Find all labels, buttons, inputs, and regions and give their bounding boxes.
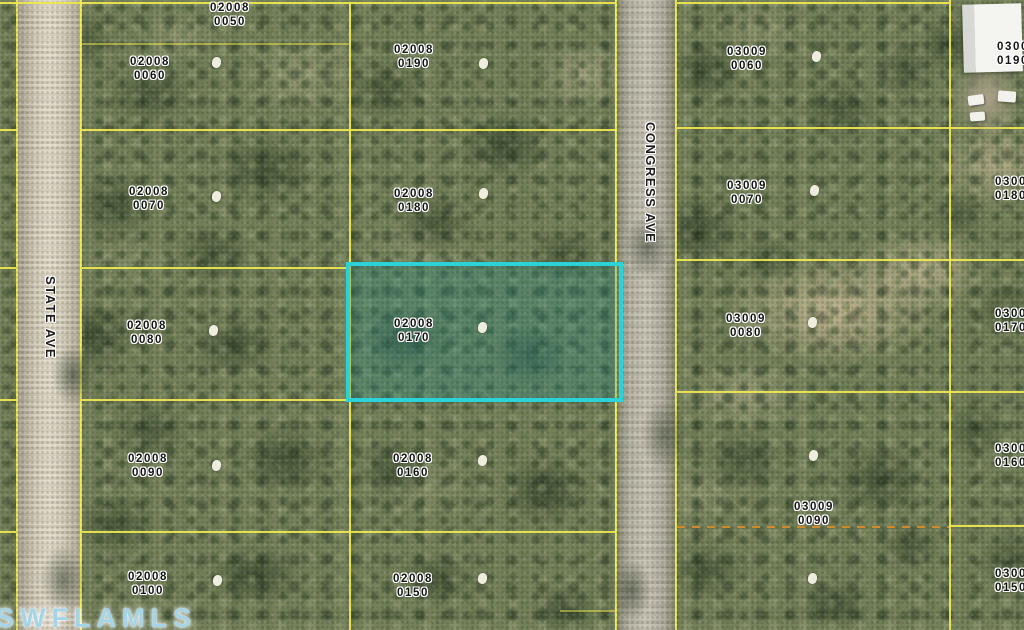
parcel-boundary-line (82, 267, 349, 269)
parcel-label: 02008 0080 (127, 320, 167, 347)
parcel-boundary-line (0, 267, 16, 269)
parcel-label: 0300 0150 (995, 568, 1024, 595)
parcel-boundary-line (560, 610, 615, 612)
parcel-label: 0300 0170 (995, 308, 1024, 335)
vehicle (998, 90, 1017, 102)
aerial-parcel-map: STATE AVE CONGRESS AVE 02008 005002008 0… (0, 0, 1024, 630)
parcel-boundary-line (82, 43, 349, 45)
parcel-label: 02008 0160 (393, 453, 433, 480)
parcel-label: 02008 0100 (128, 571, 168, 598)
parcel-label: 02008 0050 (210, 2, 250, 29)
parcel-label: 0300 0190 (997, 41, 1024, 68)
parcel-boundary-line (82, 531, 615, 533)
parcel-label: 03009 0060 (727, 46, 767, 73)
parcel-boundary-line (82, 129, 615, 131)
parcel-boundary-line (82, 399, 349, 401)
parcel-boundary-line (0, 2, 615, 4)
road-label-congress-ave: CONGRESS AVE (643, 122, 658, 243)
parcel-label: 02008 0190 (394, 44, 434, 71)
parcel-label: 02008 0180 (394, 188, 434, 215)
parcel-label: 02008 0060 (130, 56, 170, 83)
parcel-boundary-line (677, 2, 949, 4)
vehicle (970, 111, 986, 121)
parcel-label: 02008 0150 (393, 573, 433, 600)
parcel-label: 03009 0080 (726, 313, 766, 340)
parcel-label: 02008 0170 (394, 318, 434, 345)
parcel-boundary-line (0, 399, 16, 401)
parcel-boundary-line (677, 391, 1024, 393)
mls-watermark: SWFLAMLS (0, 603, 197, 630)
road-label-state-ave: STATE AVE (43, 276, 58, 359)
parcel-label: 0300 0180 (995, 176, 1024, 203)
parcel-boundary-line (949, 525, 1024, 527)
parcel-boundary-line (677, 259, 1024, 261)
parcel-label: 03009 0090 (794, 501, 834, 528)
parcel-boundary-line (0, 531, 16, 533)
parcel-label: 02008 0070 (129, 186, 169, 213)
parcel-label: 03009 0070 (727, 180, 767, 207)
parcel-label: 02008 0090 (128, 453, 168, 480)
parcel-label: 0300 0160 (995, 443, 1024, 470)
parcel-boundary-line (0, 129, 16, 131)
